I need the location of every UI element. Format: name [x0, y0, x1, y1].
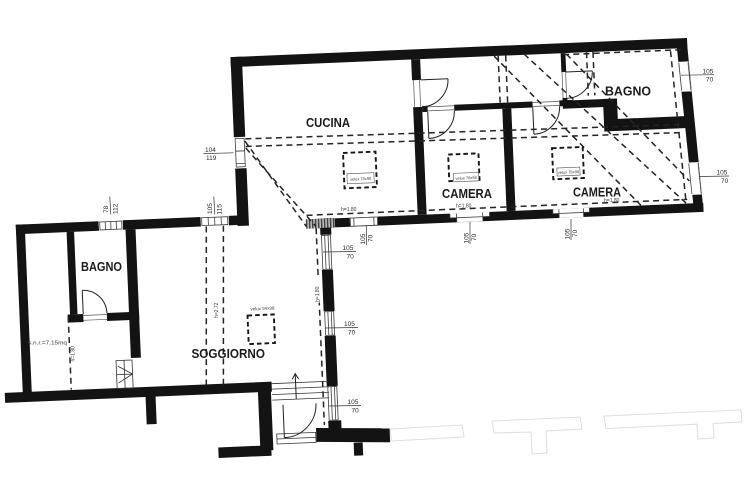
svg-text:70: 70	[352, 408, 360, 415]
svg-text:velux 78x98: velux 78x98	[558, 169, 580, 175]
svg-text:70: 70	[721, 178, 729, 185]
svg-text:112: 112	[113, 203, 120, 214]
svg-text:70: 70	[347, 254, 355, 261]
svg-text:velux 78x98: velux 78x98	[455, 175, 477, 181]
svg-text:115: 115	[217, 204, 224, 215]
svg-text:CUCINA: CUCINA	[306, 115, 351, 130]
svg-text:BAGNO: BAGNO	[605, 84, 651, 99]
svg-text:velux 94x98: velux 94x98	[250, 305, 275, 311]
svg-text:70: 70	[572, 229, 579, 237]
svg-text:105: 105	[565, 228, 572, 239]
svg-text:119: 119	[206, 155, 217, 162]
svg-text:105: 105	[360, 233, 367, 244]
svg-text:velux 78x98: velux 78x98	[350, 176, 372, 182]
svg-text:BAGNO: BAGNO	[81, 260, 122, 274]
svg-text:CAMERA: CAMERA	[442, 187, 492, 201]
svg-text:s.n.r.=7.15mq: s.n.r.=7.15mq	[28, 341, 67, 347]
svg-text:70: 70	[368, 234, 375, 242]
svg-text:105: 105	[717, 170, 728, 177]
svg-text:105: 105	[343, 245, 354, 252]
svg-text:h=1.80: h=1.80	[341, 207, 357, 213]
svg-text:78: 78	[103, 205, 110, 213]
svg-text:70: 70	[706, 77, 714, 84]
svg-text:h=1.80: h=1.80	[604, 198, 620, 204]
svg-text:104: 104	[205, 147, 216, 154]
svg-text:70: 70	[471, 233, 478, 241]
svg-text:h=2.72: h=2.72	[214, 302, 220, 318]
svg-text:SOGGIORNO: SOGGIORNO	[192, 347, 266, 361]
svg-text:105: 105	[207, 203, 214, 214]
svg-text:105: 105	[344, 321, 355, 328]
svg-text:h=1.80: h=1.80	[71, 346, 77, 362]
svg-text:105: 105	[464, 232, 471, 243]
svg-text:70: 70	[348, 330, 356, 337]
svg-text:h=1.80: h=1.80	[456, 204, 472, 210]
svg-text:105: 105	[348, 399, 359, 406]
svg-text:h=1.80: h=1.80	[315, 286, 321, 302]
